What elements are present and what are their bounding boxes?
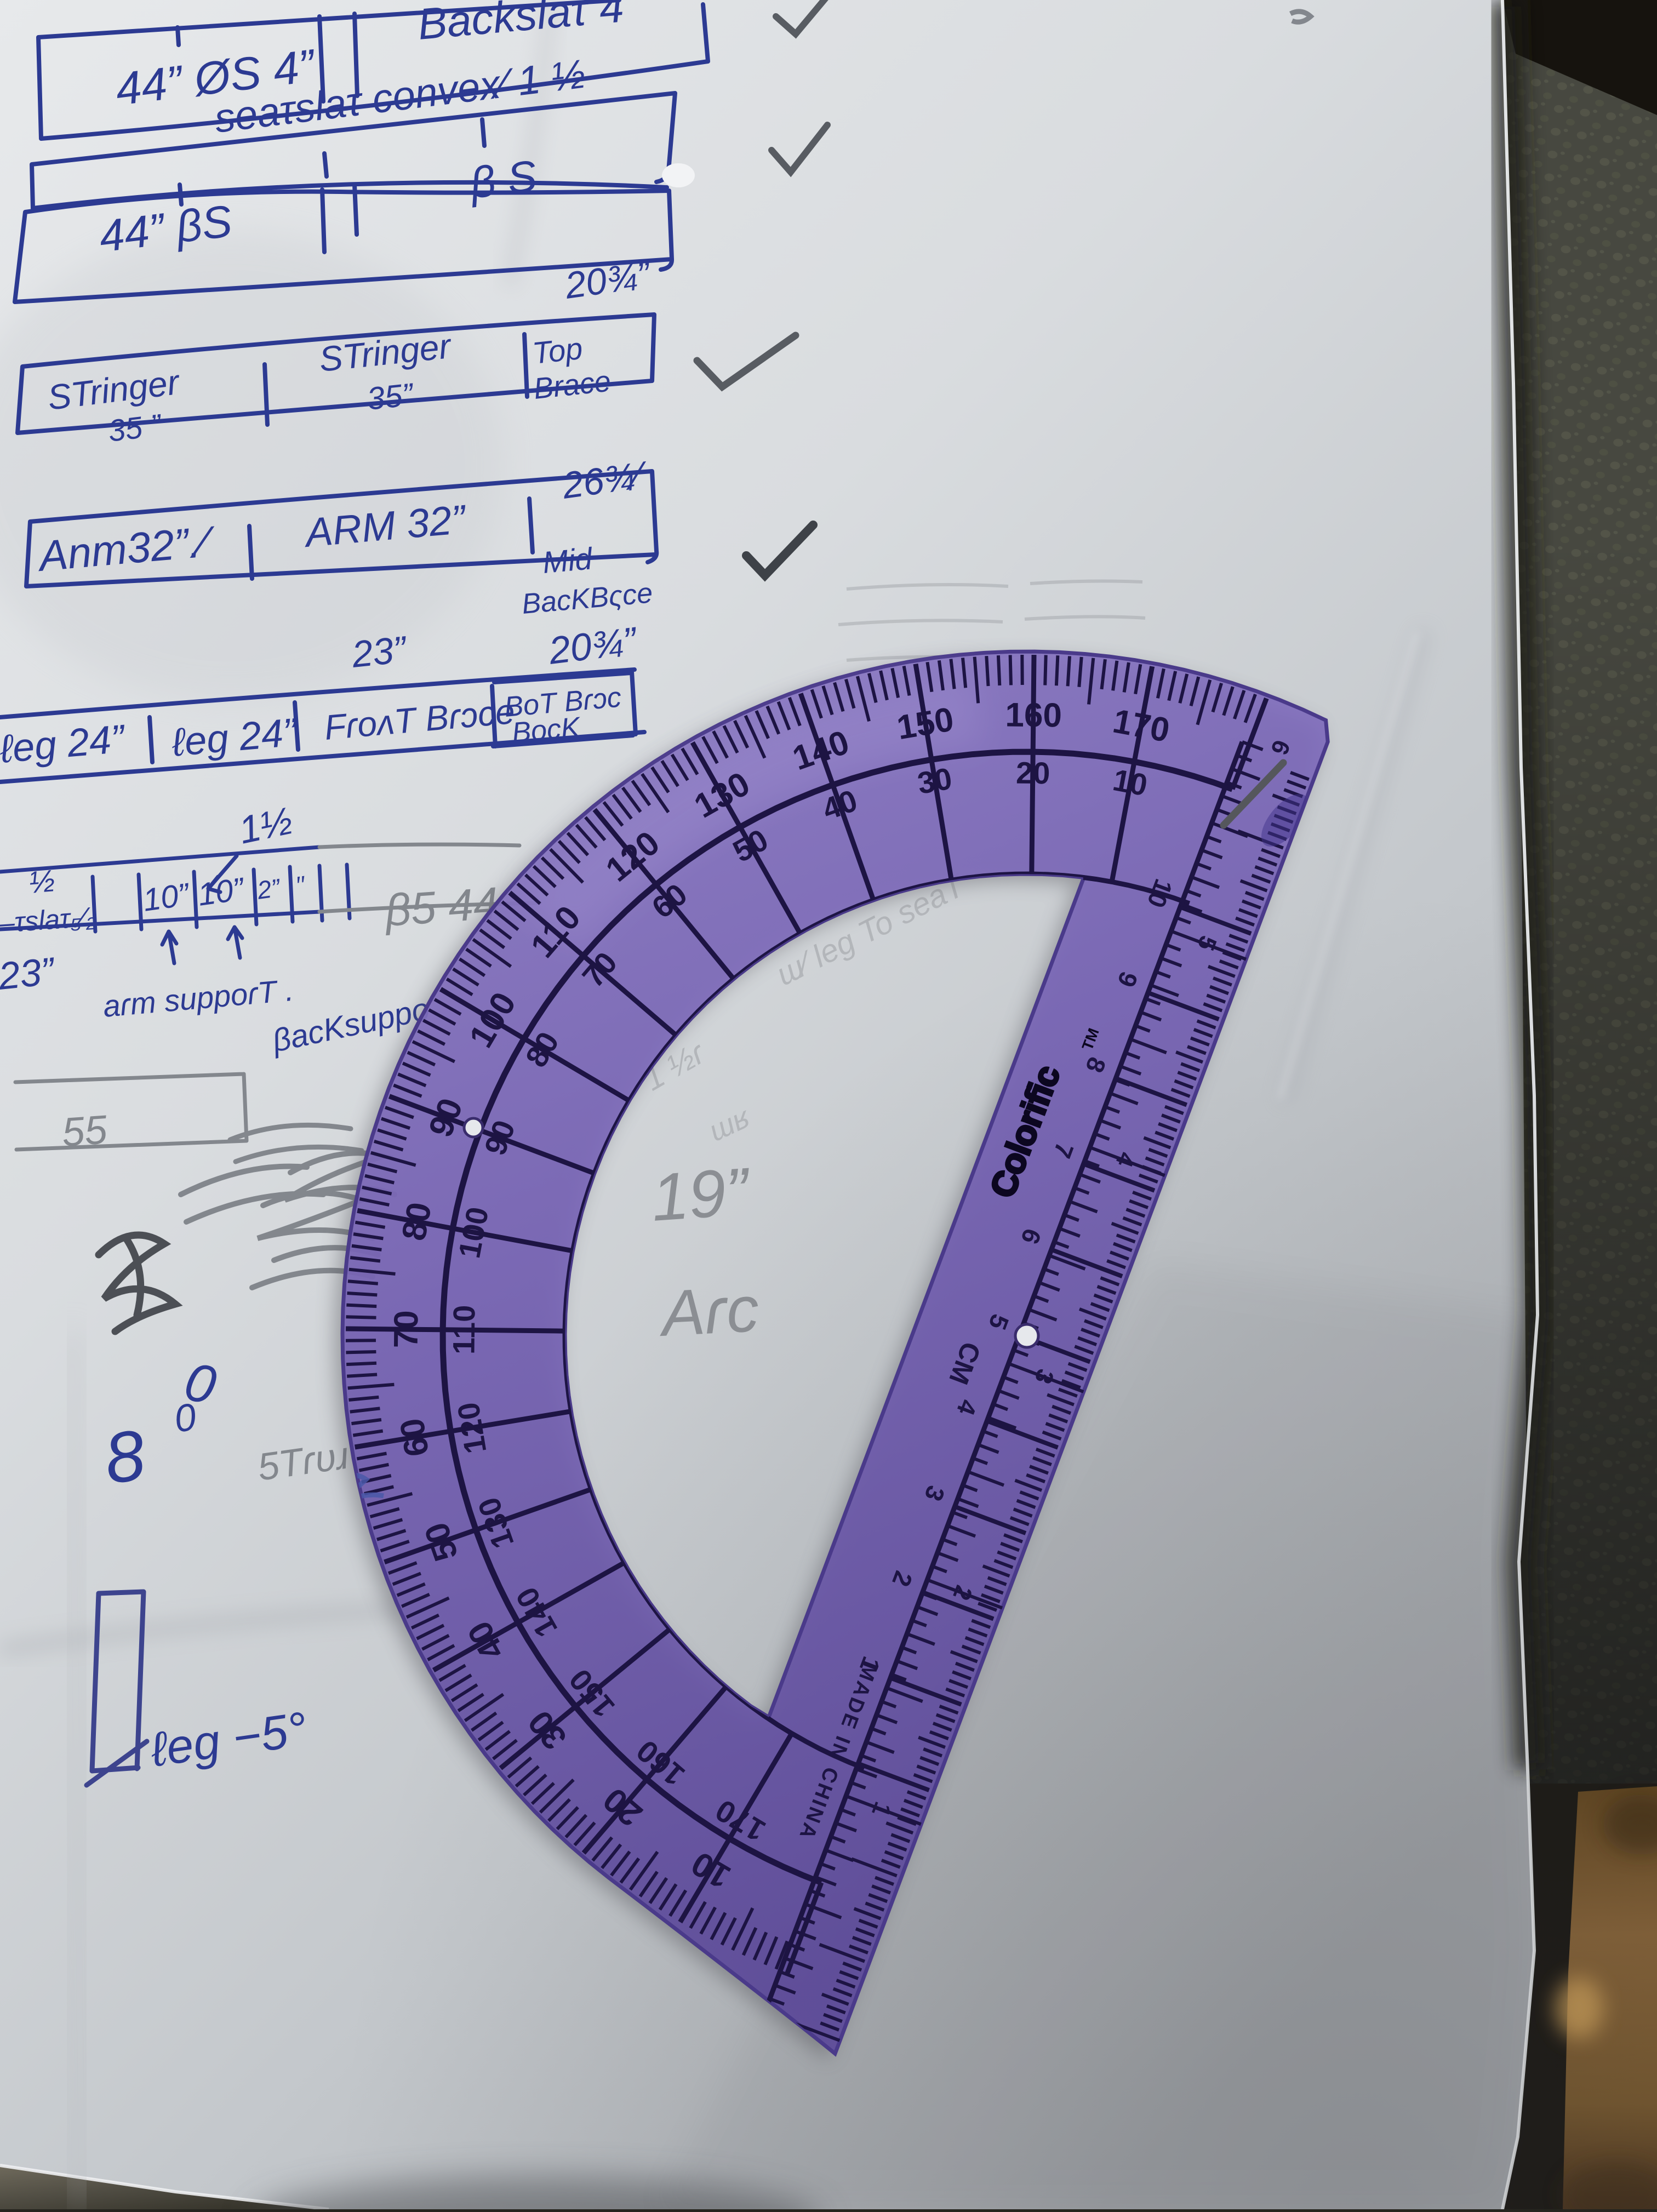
svg-text:110: 110 <box>447 1305 482 1354</box>
svg-text:60: 60 <box>393 1416 436 1459</box>
svg-text:Aɾc: Aɾc <box>656 1273 761 1350</box>
svg-text:23”: 23” <box>350 628 410 676</box>
svg-text:55: 55 <box>60 1106 109 1155</box>
svg-text:19”: 19” <box>649 1154 753 1235</box>
svg-text:20: 20 <box>1016 756 1050 791</box>
svg-text:Top: Top <box>531 331 584 370</box>
svg-text:Mid: Mid <box>541 541 595 580</box>
svg-text:80: 80 <box>395 1199 439 1243</box>
svg-text:23”: 23” <box>0 949 58 998</box>
svg-text:½: ½ <box>28 863 56 900</box>
svg-text:β S: β S <box>466 151 539 208</box>
svg-text:BοcK: BοcK <box>511 711 582 749</box>
svg-text:35”: 35” <box>365 376 416 417</box>
svg-text:35 ”: 35 ” <box>106 407 164 448</box>
svg-text:10: 10 <box>1110 762 1150 802</box>
svg-text:70: 70 <box>387 1310 426 1348</box>
svg-text:160: 160 <box>1005 696 1062 734</box>
svg-text:30: 30 <box>915 761 955 801</box>
svg-text:10”: 10” <box>141 876 193 918</box>
